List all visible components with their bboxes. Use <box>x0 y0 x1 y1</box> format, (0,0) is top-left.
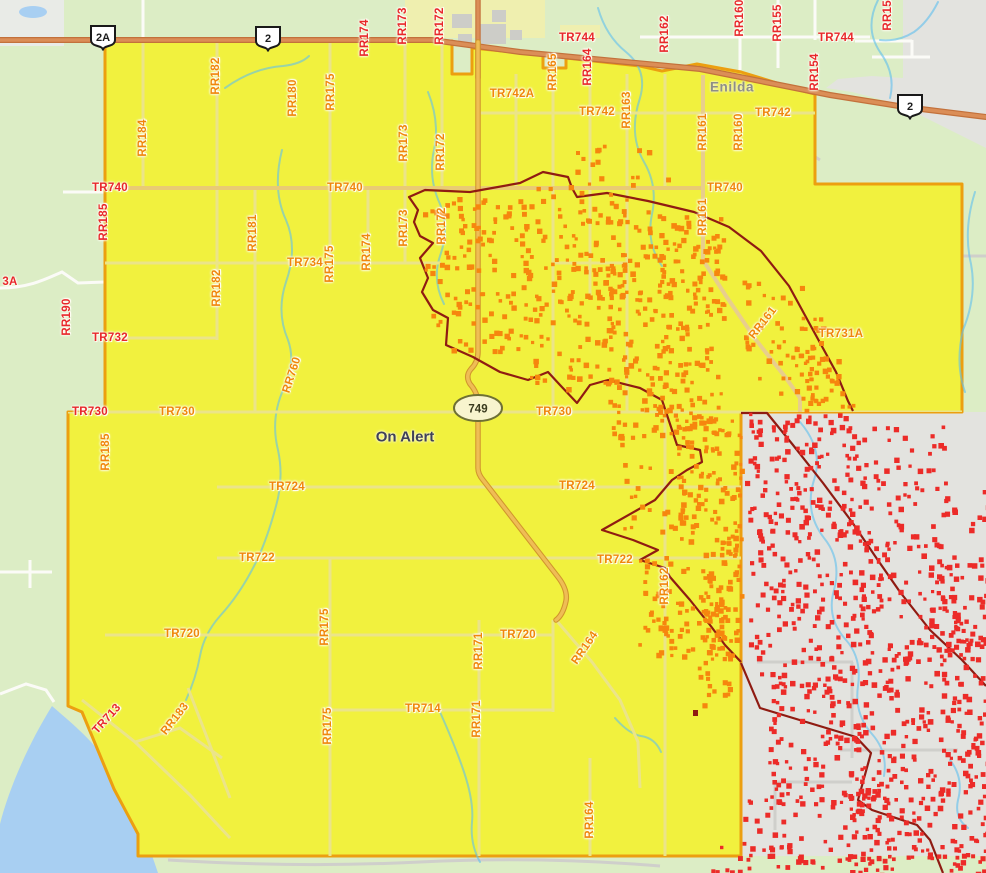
map-canvas[interactable]: 2A22749 On Alert Enilda RR174RR173RR172T… <box>0 0 986 873</box>
highway-shield-749: 749 <box>454 395 502 421</box>
svg-text:2: 2 <box>265 33 271 45</box>
svg-text:749: 749 <box>468 404 487 416</box>
map-graphics: 2A22749 <box>0 0 986 873</box>
svg-text:2: 2 <box>907 101 913 113</box>
svg-text:2A: 2A <box>96 32 110 44</box>
